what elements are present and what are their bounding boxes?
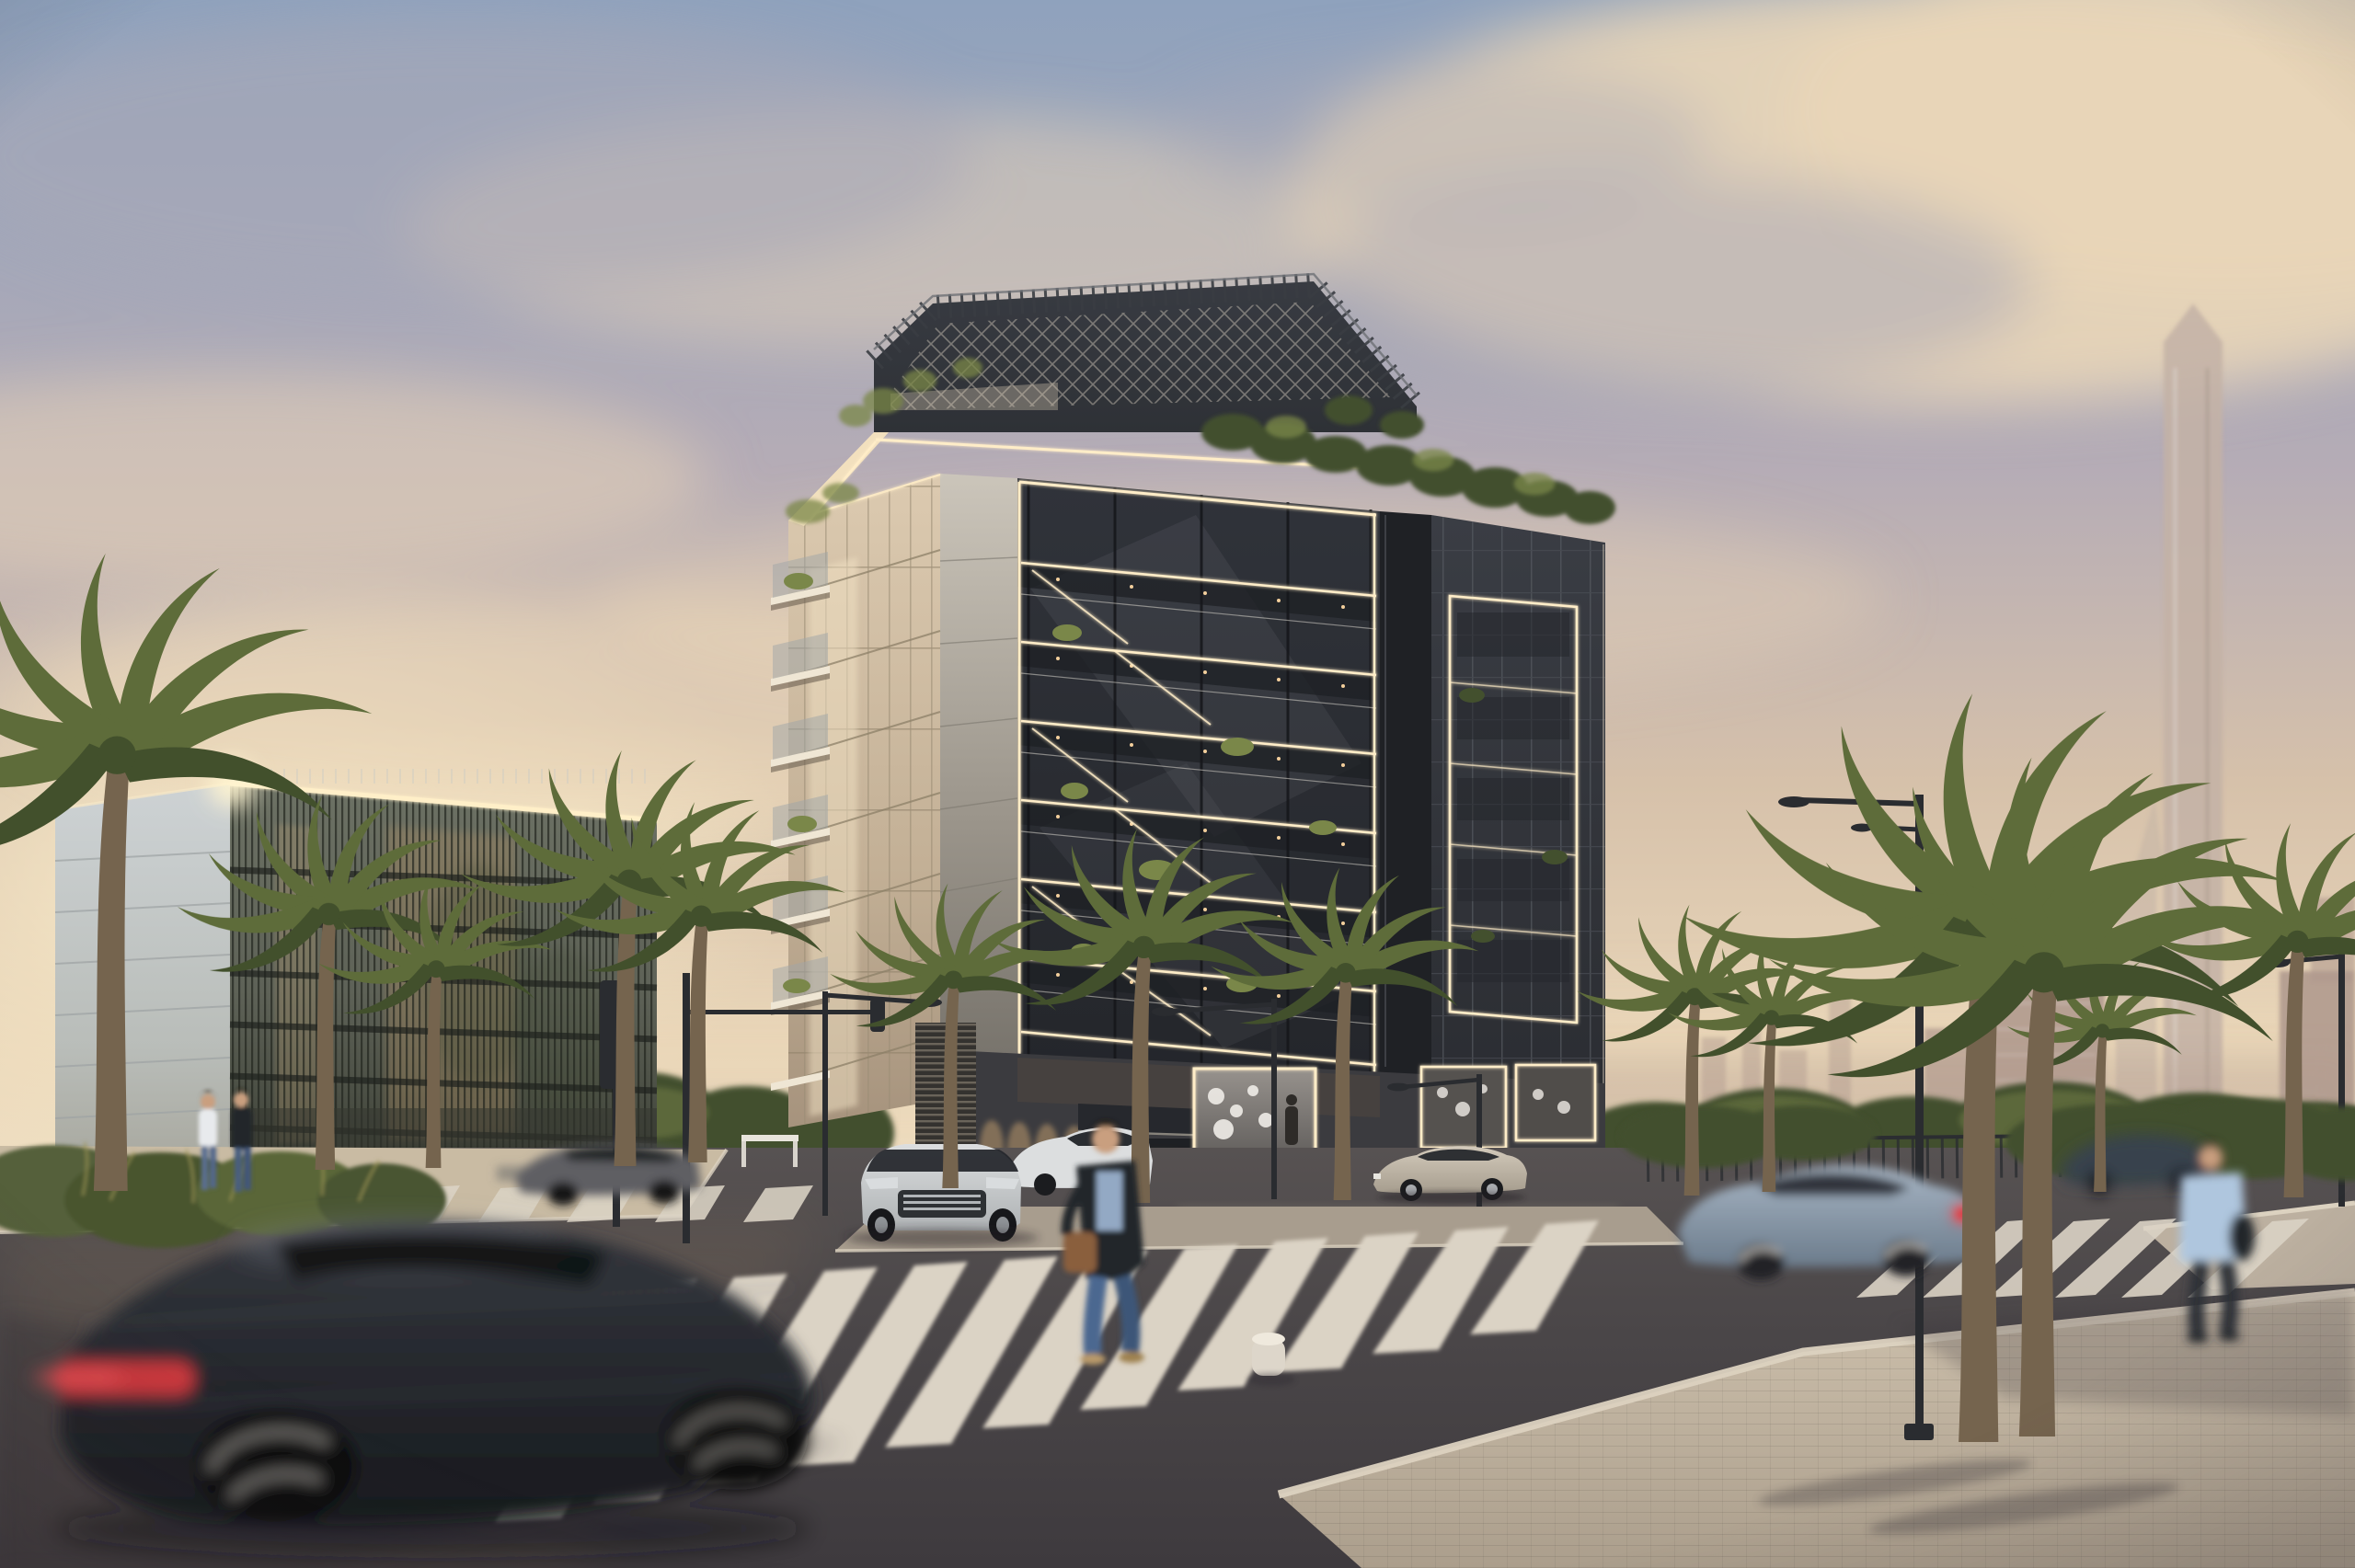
scene-svg (0, 0, 2355, 1568)
vignette (0, 0, 2355, 1568)
render-canvas (0, 0, 2355, 1568)
